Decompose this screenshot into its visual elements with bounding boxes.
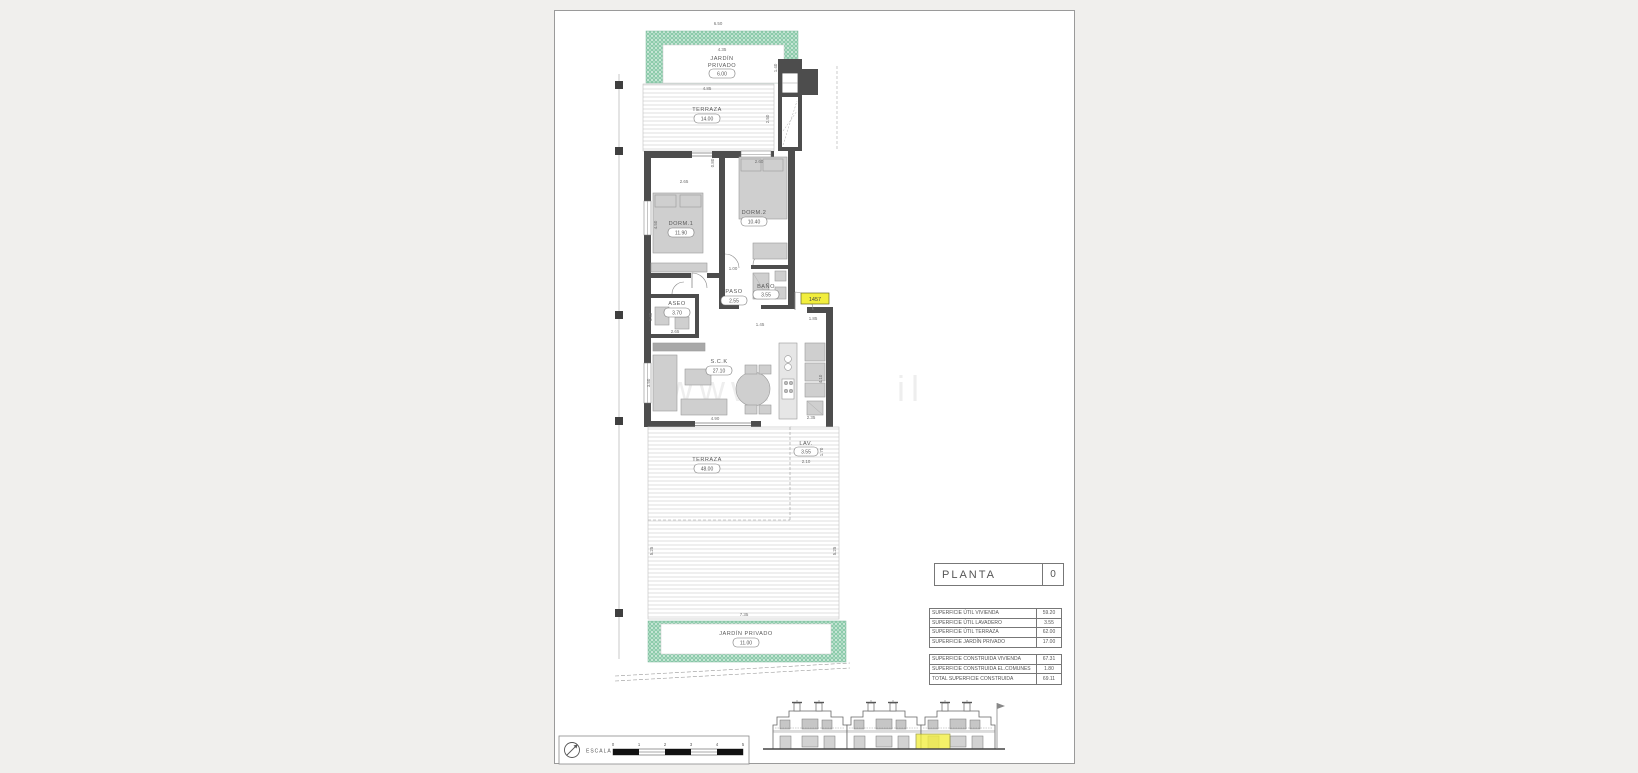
dim-label: 5.25	[832, 546, 837, 555]
table-row: SUPERFICIE ÚTIL LAVADERO 3.55	[930, 619, 1061, 629]
dorm2-label: DORM.2	[742, 210, 767, 216]
table-row: SUPERFICIE CONSTRUIDA EL.COMUNES 1.80	[930, 665, 1061, 675]
title-block-label: PLANTA	[935, 564, 1043, 585]
chair	[745, 405, 757, 414]
plan-sheet: www.c il 6.50 4.35 JARDÍN PRIV	[554, 10, 1075, 764]
dim-label: 4.35	[718, 47, 727, 52]
row-value: 67.31	[1037, 655, 1061, 664]
dim-label: 4.85	[703, 86, 712, 91]
dim-label: 1.85	[809, 316, 818, 321]
row-label: SUPERFICIE CONSTRUIDA EL.COMUNES	[930, 665, 1037, 674]
screenshot-canvas: www.c il 6.50 4.35 JARDÍN PRIV	[0, 0, 1638, 773]
garden-top: 6.50 4.35 JARDÍN PRIVADO 6.00 1.40	[646, 21, 798, 83]
chair	[759, 365, 771, 374]
title-block: PLANTA 0	[934, 563, 1064, 586]
sck-label: S.C.K	[710, 359, 727, 365]
paso-label: PASO	[725, 289, 742, 295]
dorm2-area: 10.40	[748, 220, 761, 226]
sck-area: 27.10	[713, 369, 726, 375]
chair	[745, 365, 757, 374]
terrace-main-label: TERRAZA	[692, 457, 722, 463]
table-row: SUPERFICIE CONSTRUIDA VIVIENDA 67.31	[930, 655, 1061, 665]
stair-core	[778, 59, 837, 151]
chair	[759, 405, 771, 414]
table-row: SUPERFICIE JARDÍN PRIVADO 17.00	[930, 638, 1061, 648]
terrace-main-area: 48.00	[701, 467, 714, 473]
row-label: TOTAL SUPERFICIE CONSTRUIDA	[930, 674, 1037, 684]
dim-label: 7.35	[740, 612, 749, 617]
dim-label: 3.50	[646, 378, 651, 387]
row-value: 17.00	[1037, 638, 1061, 648]
sofa	[653, 355, 677, 411]
garden-top-area: 6.00	[717, 72, 727, 78]
row-label: SUPERFICIE ÚTIL TERRAZA	[930, 628, 1037, 637]
dim-label: 4.50	[653, 220, 658, 229]
dim-label: 4.90	[711, 416, 720, 421]
row-value: 1.80	[1037, 665, 1061, 674]
title-block-value: 0	[1043, 564, 1063, 585]
terrace-top-label: TERRAZA	[692, 107, 722, 113]
row-label: SUPERFICIE CONSTRUIDA VIVIENDA	[930, 655, 1037, 664]
garden-bottom-label: JARDÍN PRIVADO	[719, 630, 773, 637]
scale-label: ESCALA :	[586, 749, 616, 755]
watermark-text: il	[897, 368, 925, 409]
garden-top-label: PRIVADO	[708, 63, 736, 69]
row-label: SUPERFICIE ÚTIL VIVIENDA	[930, 609, 1037, 618]
building-elevation	[763, 700, 1005, 749]
paso-area: 2.55	[729, 299, 739, 305]
wardrobe	[753, 243, 787, 259]
dim-label: 1.40	[648, 312, 653, 321]
row-value: 62.00	[1037, 628, 1061, 637]
cabinet	[805, 343, 825, 361]
aseo-area: 3.70	[672, 311, 682, 317]
dim-label: 1.40	[773, 63, 778, 72]
garden-bottom: JARDÍN PRIVADO 11.00	[615, 621, 850, 681]
table-row: SUPERFICIE ÚTIL VIVIENDA 59.20	[930, 609, 1061, 619]
lav-label: LAV.	[799, 441, 812, 447]
dim-label: 2.35	[807, 415, 816, 420]
table-row: SUPERFICIE ÚTIL TERRAZA 62.00	[930, 628, 1061, 638]
scale-segments	[613, 749, 743, 755]
row-value: 69.11	[1037, 674, 1061, 684]
scale-bar: ESCALA : 0 1 2 3 4 5	[559, 736, 749, 764]
cabinet	[805, 383, 825, 397]
unit-tag-number: 1457	[809, 297, 821, 303]
surface-util-table: SUPERFICIE ÚTIL VIVIENDA 59.20 SUPERFICI…	[929, 608, 1062, 648]
dorm1-area: 11.90	[675, 231, 687, 237]
bano-label: BAÑO	[757, 283, 775, 290]
toilet	[675, 317, 689, 329]
flag	[997, 703, 1005, 709]
dim-label: 2.65	[680, 179, 689, 184]
sofa	[681, 399, 727, 415]
dim-label: 0.80	[710, 158, 715, 167]
dorm1-label: DORM.1	[669, 221, 694, 227]
unit-tag: 1457	[801, 293, 829, 304]
dining-table	[736, 372, 770, 406]
row-value: 3.55	[1037, 619, 1061, 628]
dim-label: 1.70	[819, 447, 824, 456]
dim-label: 2.10	[802, 459, 811, 464]
table-row: TOTAL SUPERFICIE CONSTRUIDA 69.11	[930, 674, 1061, 684]
wardrobe	[651, 263, 707, 272]
terrace-top: 4.85 TERRAZA 14.00 2.50	[643, 84, 774, 151]
garden-bottom-area: 11.00	[740, 641, 752, 647]
dim-label: 1.00	[729, 266, 738, 271]
dim-label: 5.25	[649, 546, 654, 555]
terrace-top-area: 14.00	[701, 117, 714, 123]
floor-plan-drawing: www.c il 6.50 4.35 JARDÍN PRIV	[555, 11, 1076, 765]
highlighted-unit	[916, 734, 950, 749]
row-label: SUPERFICIE ÚTIL LAVADERO	[930, 619, 1037, 628]
tv-unit	[653, 343, 705, 351]
dim-label: 4.10	[818, 374, 823, 383]
row-value: 59.20	[1037, 609, 1061, 618]
sink	[775, 271, 786, 281]
dim-label: 2.60	[755, 159, 764, 164]
neighbour-wall	[802, 69, 818, 95]
dim-label: 6.50	[714, 21, 723, 26]
lav-area: 3.55	[801, 450, 811, 456]
row-label: SUPERFICIE JARDÍN PRIVADO	[930, 638, 1037, 648]
dim-label: 2.50	[765, 114, 770, 123]
bano-area: 3.55	[761, 293, 771, 299]
dim-label: 1.45	[756, 322, 765, 327]
dim-label: 2.65	[671, 329, 680, 334]
garden-top-label: JARDÍN	[710, 55, 733, 62]
surface-construida-table: SUPERFICIE CONSTRUIDA VIVIENDA 67.31 SUP…	[929, 654, 1062, 685]
aseo-label: ASEO	[668, 301, 686, 307]
